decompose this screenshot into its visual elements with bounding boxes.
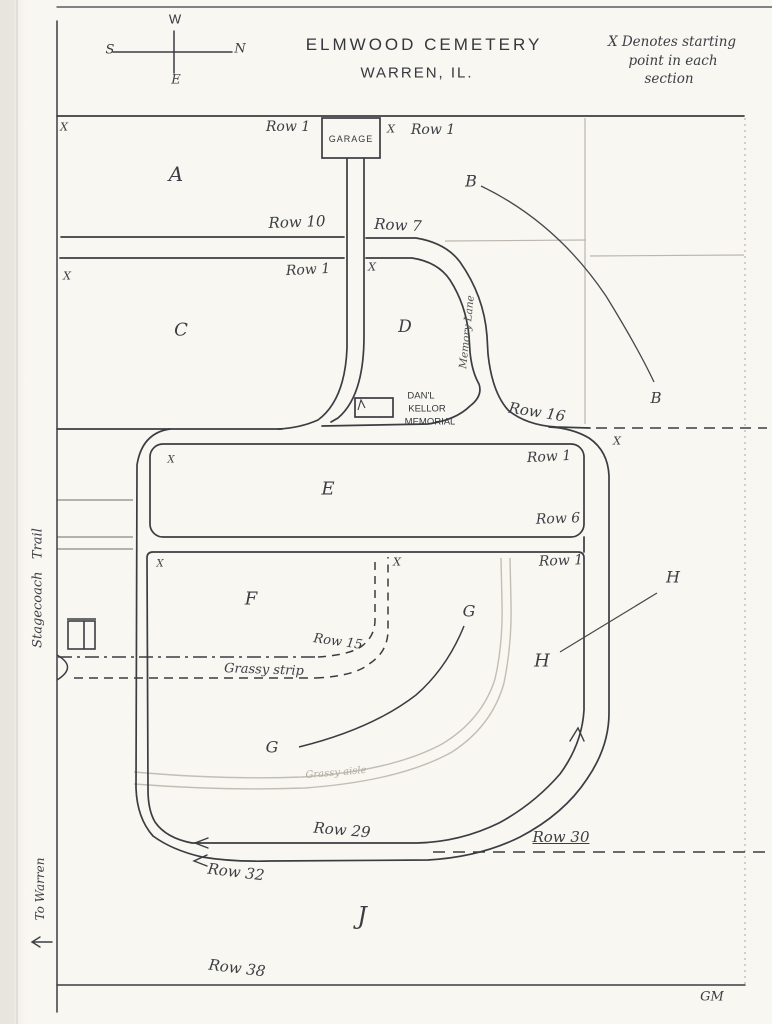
section-j-label: J xyxy=(357,902,367,930)
memorial-label-line3: MEMORIAL xyxy=(405,417,456,428)
compass-north-label: N xyxy=(234,42,245,57)
cemetery-map-scan: ELMWOOD CEMETERY WARREN, IL. X Denotes s… xyxy=(0,0,772,1024)
x-marker-row16-corner: X xyxy=(613,435,621,448)
stagecoach-trail-label: Stagecoach Trail xyxy=(31,528,46,648)
to-warren-label: To Warren xyxy=(33,858,47,921)
map-drawing xyxy=(0,0,772,1024)
row1-label-section-a-west: Row 1 xyxy=(266,119,310,135)
section-b-label-lower: B xyxy=(650,389,661,407)
compass-south-label: S xyxy=(106,43,115,58)
section-c-label: C xyxy=(174,320,188,341)
section-b-connector-line xyxy=(481,186,654,382)
grassy-strip-label: Grassy strip xyxy=(224,661,304,679)
compass-west-label: W xyxy=(169,12,181,27)
memorial-marker xyxy=(355,398,393,417)
gate-arc xyxy=(57,655,68,680)
row30-label: Row 30 xyxy=(532,828,589,846)
map-subtitle: WARREN, IL. xyxy=(360,65,473,82)
legend-note-line3: section xyxy=(644,71,693,87)
direction-arrows xyxy=(32,728,584,947)
grassy-aisle-curve xyxy=(134,558,511,789)
pencil-guide-lines xyxy=(445,118,745,984)
outbuilding xyxy=(67,619,96,649)
mapmaker-initials: GM xyxy=(700,990,724,1005)
section-e-label: E xyxy=(321,479,334,500)
section-g-label-upper: G xyxy=(463,602,476,621)
dashed-row-boundaries xyxy=(58,428,767,852)
x-marker-section-e: X xyxy=(167,455,174,466)
x-marker-section-c: X xyxy=(63,270,71,283)
west-strip-row-lines xyxy=(57,500,133,549)
road-network xyxy=(57,7,772,1012)
memorial-label-line2: KELLOR xyxy=(408,404,446,415)
garage-label: GARAGE xyxy=(329,134,374,144)
compass-icon xyxy=(113,31,232,73)
section-a-label: A xyxy=(169,162,183,186)
row10-label: Row 10 xyxy=(268,212,326,232)
x-marker-east-of-garage: X xyxy=(387,123,395,136)
section-d-label: D xyxy=(398,317,412,337)
section-b-label-upper: B xyxy=(465,172,477,191)
row1-label-section-a-east: Row 1 xyxy=(411,122,455,138)
section-g-label-lower: G xyxy=(266,738,279,757)
section-f-label: F xyxy=(245,589,258,610)
to-warren-arrow xyxy=(32,937,52,947)
map-title: ELMWOOD CEMETERY xyxy=(306,35,543,55)
x-marker-section-f: X xyxy=(156,559,163,570)
row1-label-section-e: Row 1 xyxy=(526,448,571,466)
section-h-label-inner: H xyxy=(534,651,550,672)
row1-label-section-fgh: Row 1 xyxy=(539,552,584,570)
x-marker-section-f-east: X xyxy=(393,556,401,569)
compass-east-label: E xyxy=(171,73,181,88)
legend-note-line1: X Denotes starting xyxy=(608,34,736,50)
row1-label-section-c: Row 1 xyxy=(285,261,330,279)
section-h-label-outer: H xyxy=(666,568,680,587)
x-marker-section-d: X xyxy=(368,261,376,274)
x-marker-section-a: X xyxy=(60,121,68,134)
legend-note-line2: point in each xyxy=(628,53,717,69)
row6-label: Row 6 xyxy=(536,510,581,528)
memorial-label-line1: DAN'L xyxy=(407,391,434,402)
row7-label: Row 7 xyxy=(374,215,422,235)
